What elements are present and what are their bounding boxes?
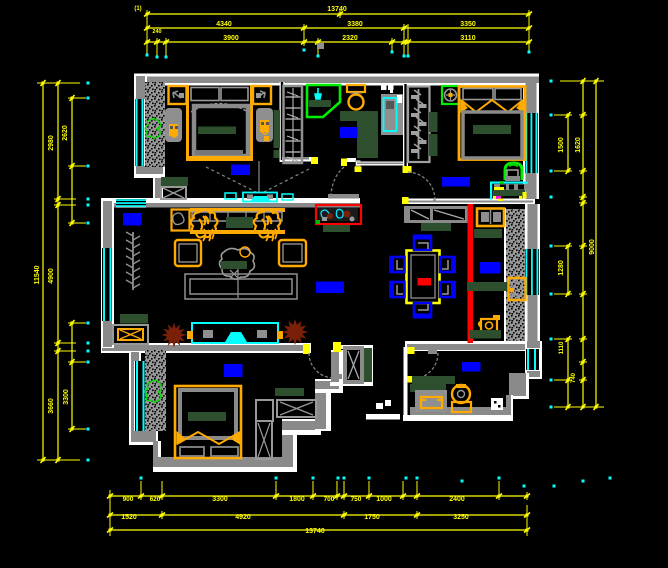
- svg-text:1500: 1500: [558, 137, 565, 153]
- svg-text:9000: 9000: [589, 239, 596, 255]
- svg-text:4900: 4900: [48, 268, 55, 284]
- svg-text:2620: 2620: [62, 125, 69, 141]
- svg-text:(1): (1): [134, 6, 141, 12]
- svg-text:2980: 2980: [48, 135, 55, 151]
- svg-text:3300: 3300: [212, 496, 228, 503]
- svg-text:1800: 1800: [289, 496, 305, 503]
- svg-text:2320: 2320: [342, 35, 358, 42]
- svg-text:1750: 1750: [364, 514, 380, 521]
- svg-text:3380: 3380: [347, 21, 363, 28]
- svg-text:3900: 3900: [223, 35, 239, 42]
- svg-text:3300: 3300: [63, 389, 70, 405]
- svg-text:3110: 3110: [460, 35, 475, 42]
- svg-text:3660: 3660: [48, 398, 55, 414]
- svg-text:3350: 3350: [460, 21, 476, 28]
- svg-text:1280: 1280: [558, 260, 565, 276]
- svg-text:11540: 11540: [34, 265, 41, 284]
- svg-text:1620: 1620: [575, 137, 582, 153]
- svg-text:4920: 4920: [235, 514, 251, 521]
- svg-text:4340: 4340: [216, 21, 232, 28]
- svg-text:900: 900: [123, 496, 134, 503]
- svg-text:1000: 1000: [376, 496, 392, 503]
- svg-text:3250: 3250: [453, 514, 469, 521]
- svg-text:620: 620: [150, 496, 161, 503]
- svg-text:2400: 2400: [449, 496, 465, 503]
- svg-text:740: 740: [571, 372, 577, 383]
- svg-text:1520: 1520: [121, 514, 137, 521]
- svg-text:700: 700: [324, 496, 335, 503]
- svg-text:750: 750: [351, 496, 362, 503]
- svg-text:1110: 1110: [559, 341, 565, 354]
- svg-text:240: 240: [152, 29, 161, 35]
- svg-text:13740: 13740: [305, 528, 325, 535]
- svg-text:13740: 13740: [327, 6, 347, 13]
